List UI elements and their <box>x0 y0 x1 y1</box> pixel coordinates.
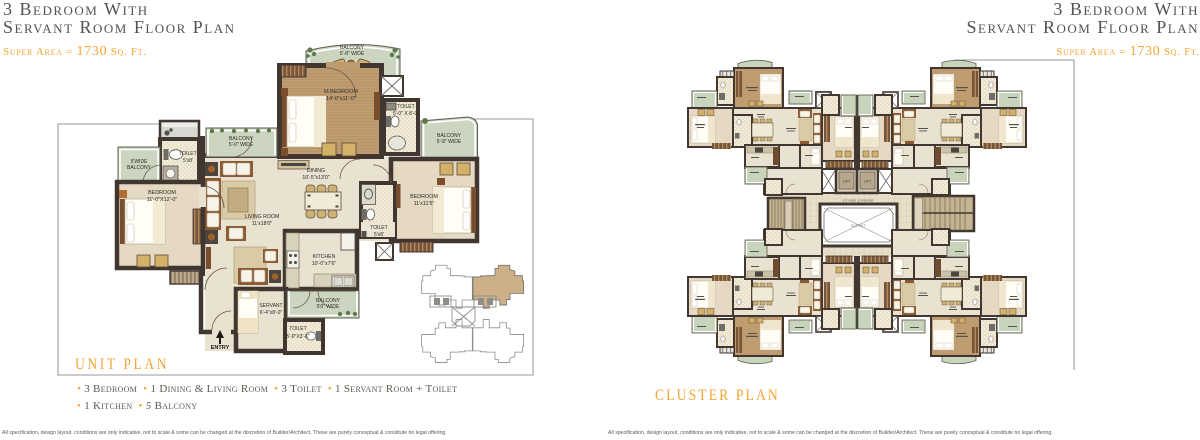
svg-text:TOILET: TOILET <box>179 151 196 157</box>
svg-text:LIVING ROOM: LIVING ROOM <box>245 214 280 220</box>
svg-text:11'-0"X12'-0": 11'-0"X12'-0" <box>147 197 178 203</box>
svg-text:LIFT: LIFT <box>864 180 872 184</box>
svg-text:ENTRY: ENTRY <box>211 345 230 351</box>
svg-text:5'-8" WIDE: 5'-8" WIDE <box>340 51 365 57</box>
svg-text:5'-0"X3'-6": 5'-0"X3'-6" <box>286 334 309 340</box>
svg-text:BALCONY: BALCONY <box>127 165 152 171</box>
svg-text:M.BEDROOM: M.BEDROOM <box>324 89 358 95</box>
svg-text:5'-0" X 8'-0": 5'-0" X 8'-0" <box>393 111 419 117</box>
svg-text:KITCHEN: KITCHEN <box>313 254 336 260</box>
svg-text:BEDROOM: BEDROOM <box>148 190 176 196</box>
svg-text:11'x11'6": 11'x11'6" <box>414 201 435 207</box>
svg-text:TOILET: TOILET <box>397 104 414 110</box>
svg-text:SERVANT: SERVANT <box>259 303 282 309</box>
svg-text:10'-5"x13'0": 10'-5"x13'0" <box>302 175 329 181</box>
svg-text:LIFT: LIFT <box>843 180 851 184</box>
svg-text:TOILET: TOILET <box>289 326 306 332</box>
svg-text:6'-4"x8'-0": 6'-4"x8'-0" <box>260 310 283 316</box>
svg-text:5'0" WIDE CORRIDOR: 5'0" WIDE CORRIDOR <box>843 199 875 203</box>
svg-text:5'x8': 5'x8' <box>183 158 193 164</box>
svg-text:BEDROOM: BEDROOM <box>410 194 438 200</box>
svg-text:11'x18'0": 11'x18'0" <box>252 221 273 227</box>
svg-text:10'-0"x7'6": 10'-0"x7'6" <box>312 261 337 267</box>
svg-text:14'-0"x11'-0": 14'-0"x11'-0" <box>326 96 356 102</box>
svg-text:5'-8" WIDE: 5'-8" WIDE <box>437 139 462 145</box>
svg-text:TOILET: TOILET <box>370 225 387 231</box>
svg-text:5'x8': 5'x8' <box>374 232 384 238</box>
svg-text:CUTOUT: CUTOUT <box>851 224 866 228</box>
svg-text:DINING: DINING <box>307 168 325 174</box>
